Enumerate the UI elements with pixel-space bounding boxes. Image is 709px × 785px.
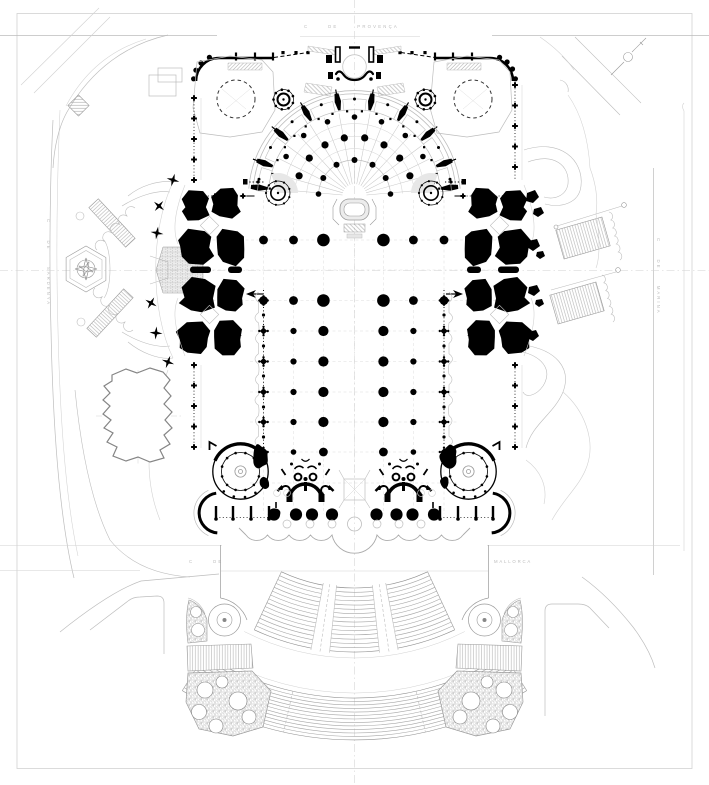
svg-text:C DE PROVENÇA: C DE PROVENÇA — [304, 24, 399, 29]
svg-text:C DE SARDENYA: C DE SARDENYA — [46, 219, 51, 306]
svg-text:MALLORCA: MALLORCA — [494, 559, 532, 564]
svg-text:C DE MARINA: C DE MARINA — [656, 238, 661, 315]
svg-text:C DE: C DE — [189, 559, 223, 564]
